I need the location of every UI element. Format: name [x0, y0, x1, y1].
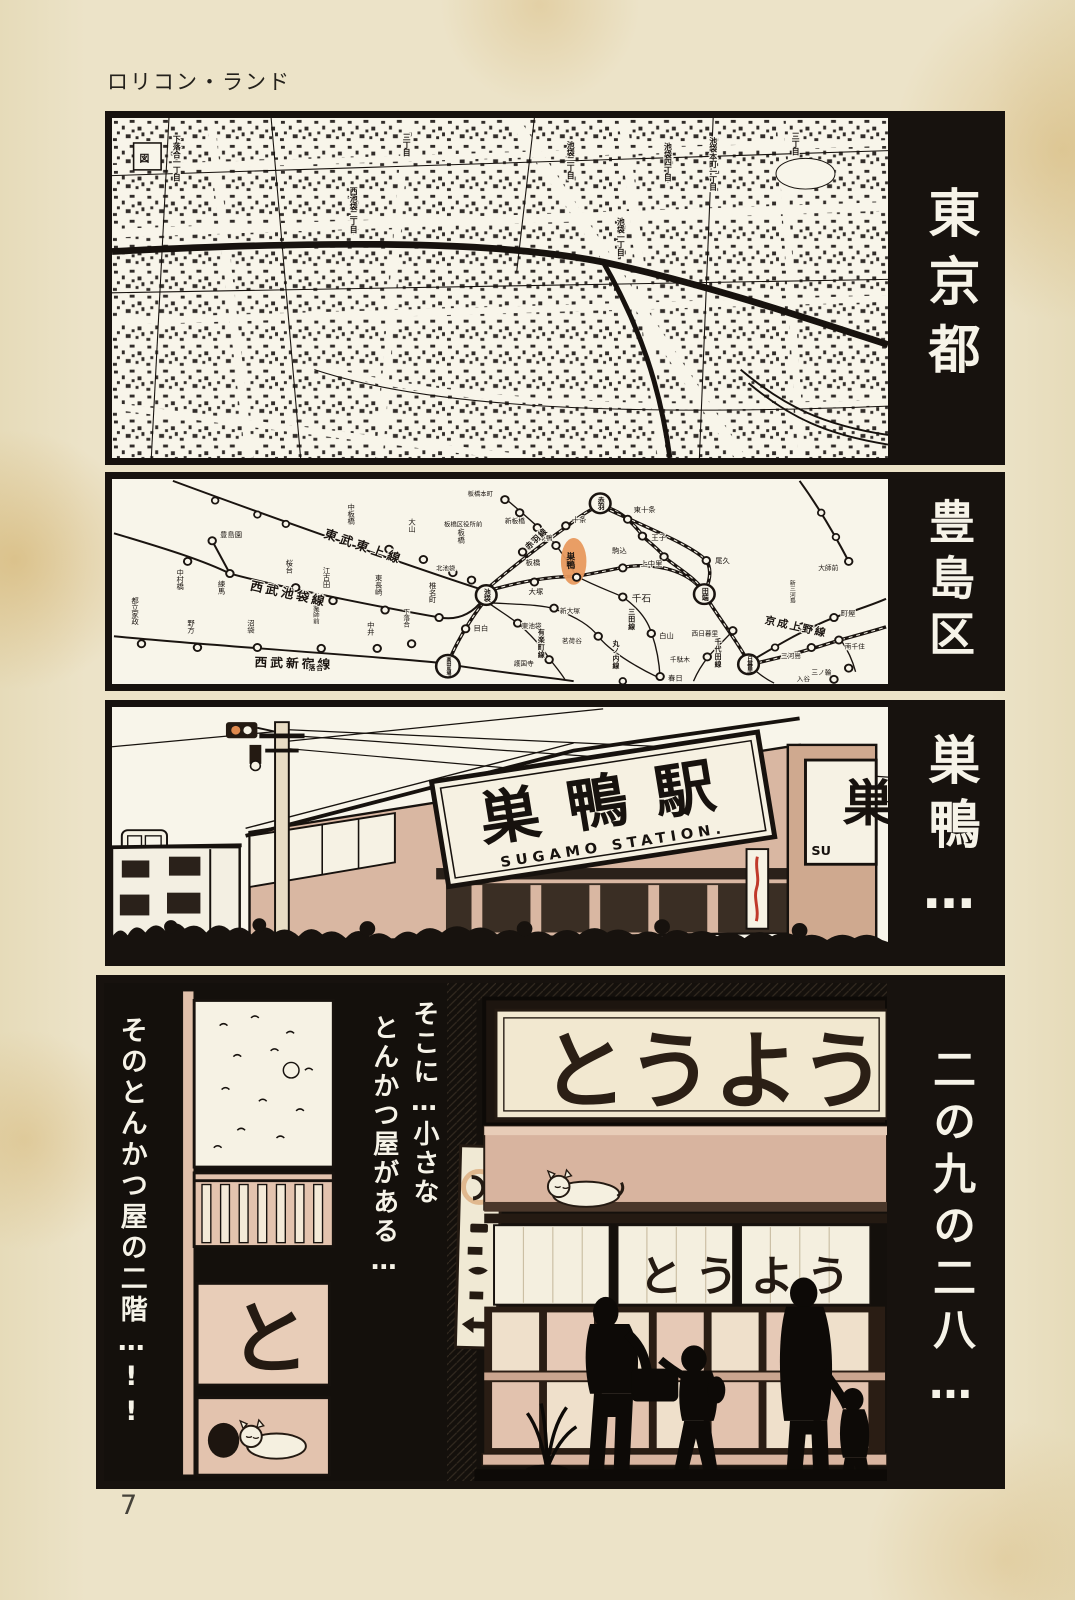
station-label: 沼袋 — [247, 619, 256, 635]
partial-station-sign-sub: SU — [811, 843, 831, 858]
station-label: 三ノ輪 — [811, 668, 832, 677]
station-label: 大師前 — [818, 563, 839, 572]
station-label: 北池袋 — [436, 565, 455, 573]
caption-bar-tokyo: 東京都 — [893, 111, 1005, 465]
station-label: 桜台 — [285, 559, 294, 575]
station-dot — [594, 633, 601, 640]
to-sign-char: と — [229, 1293, 309, 1385]
station-banner — [747, 849, 769, 929]
caption-bar-toshima: 豊島区 — [893, 472, 1005, 691]
district-label: 三丁目 — [791, 132, 800, 156]
to-signboard: と — [197, 1283, 329, 1385]
caption-bar-address: 二の九の二八… — [895, 975, 1005, 1489]
district-label: 下落合一丁目 — [172, 135, 181, 182]
station-label: 板橋 — [526, 558, 541, 567]
page-number: 7 — [120, 1490, 137, 1521]
station-dot — [462, 625, 469, 632]
panel-map-tokyo: 下落合一丁目図三丁目西池袋二丁目池袋二丁目池袋一丁目池袋四丁目池袋本町一丁目三丁… — [105, 111, 895, 465]
station-dot — [830, 676, 837, 683]
station-dot — [212, 497, 219, 503]
station-label: 千石 — [632, 594, 652, 605]
tonkatsu-shop-scene: と — [104, 983, 887, 1481]
caption-there-is-a-shop: そこに…小さな とんかつ屋がある… — [336, 1000, 444, 1340]
station-dot — [501, 496, 508, 503]
station-label: 東長崎 — [375, 574, 384, 596]
district-label: 池袋一丁目 — [616, 217, 625, 258]
major-station-label: 赤羽 — [596, 496, 605, 511]
station-dot — [254, 511, 261, 517]
station-dot — [208, 537, 215, 544]
station-label: 板橋区役所前 — [444, 521, 482, 529]
station-label: 王子 — [651, 533, 666, 542]
station-dot — [194, 644, 201, 651]
station-label: 町屋 — [841, 609, 856, 618]
panel-sugamo-station: 巣 SU 巣鴨駅 SUGAMO STATION. — [105, 700, 895, 966]
wall-edge — [182, 991, 194, 1475]
station-label: 上中里 — [640, 559, 662, 568]
station-dot — [226, 570, 233, 577]
station-dot — [545, 656, 552, 663]
shop-fascia — [484, 1126, 887, 1211]
district-label: 西池袋二丁目 — [349, 187, 358, 234]
station-dot — [835, 636, 842, 643]
station-label: 中村橋 — [176, 568, 185, 591]
rail-lines — [114, 481, 886, 683]
manga-page: ロリコン・ランド — [0, 0, 1075, 1600]
station-label: 護国寺 — [514, 658, 535, 667]
station-label: 中井 — [367, 621, 376, 637]
caption-sugamo: 巣鴨… — [923, 733, 975, 933]
map-park — [776, 158, 835, 189]
station-label: 駒込 — [612, 546, 627, 555]
station-dot — [184, 558, 191, 565]
line-label: 落合 — [308, 663, 324, 672]
district-label: 池袋二丁目 — [566, 140, 575, 181]
district-label: 図 — [140, 153, 150, 165]
station-dot — [619, 593, 626, 600]
station-dot — [639, 533, 646, 540]
station-dot — [704, 653, 711, 660]
station-label: 江古田 — [323, 567, 332, 589]
station-dot — [516, 509, 523, 516]
station-dot — [531, 578, 538, 585]
balcony-railing — [194, 1173, 333, 1247]
station-label: 椎名町 — [429, 581, 438, 603]
caption-col-2: とんかつ屋がある… — [363, 1000, 403, 1340]
line-label: 三田線 — [627, 608, 636, 631]
station-dot — [514, 620, 521, 627]
station-dot — [381, 606, 388, 613]
district-label: 池袋本町一丁目 — [708, 136, 717, 192]
partial-station-sign-char: 巣 — [843, 775, 888, 833]
major-station-label: 池袋 — [482, 587, 492, 602]
caption-toshima: 豊島区 — [926, 498, 972, 666]
station-label: 新板橋 — [505, 516, 526, 525]
shop-sign-text: とうよう — [541, 1023, 886, 1122]
noren-text: とうよう — [639, 1252, 862, 1302]
upper-window — [194, 1000, 333, 1167]
station-label: 入谷 — [797, 674, 811, 683]
line-label: 千代田線 — [713, 637, 723, 668]
station-label: 都立家政 — [131, 597, 140, 626]
station-dot — [845, 665, 852, 672]
station-dot — [562, 522, 569, 529]
shadow-blob — [208, 1423, 239, 1458]
station-dot — [818, 510, 825, 516]
station-dot — [830, 614, 837, 621]
station-dot — [619, 678, 626, 684]
cat-panel — [197, 1398, 329, 1476]
caption-bar-sugamo: 巣鴨… — [893, 700, 1005, 966]
station-label: 白山 — [659, 631, 674, 640]
station-dot — [435, 614, 442, 621]
line-label: 東武東上線 — [322, 526, 406, 567]
traffic-light-icon — [226, 722, 275, 770]
station-dot — [550, 605, 557, 612]
station-dot — [729, 627, 736, 634]
station-dot — [845, 558, 852, 565]
station-label: 東十条 — [634, 505, 656, 514]
station-label: 巣鴨 — [565, 551, 577, 570]
station-dot — [552, 542, 559, 549]
page-title: ロリコン・ランド — [107, 66, 291, 96]
station-dot — [656, 673, 663, 680]
district-label: 池袋四丁目 — [663, 142, 672, 183]
station-label: 大塚 — [528, 587, 543, 596]
station-dot — [519, 548, 526, 555]
station-dot — [317, 645, 324, 652]
station-label: 三河島 — [781, 651, 802, 660]
station-dot — [138, 640, 145, 647]
station-label: 大山 — [408, 518, 417, 534]
sugamo-station-scene: 巣 SU 巣鴨駅 SUGAMO STATION. — [112, 707, 888, 959]
station-label: 新三河島 — [788, 579, 795, 604]
caption-tonkatsu-second-floor: そのとんかつ屋の二階…!! — [114, 1016, 148, 1476]
station-dot — [624, 516, 631, 523]
station-label: 下落合 — [402, 608, 410, 629]
line-label: 西武池袋線 — [249, 578, 329, 609]
shop-sign: とうよう — [484, 999, 887, 1125]
station-dot — [468, 577, 475, 584]
station-label: 豊島園 — [220, 530, 242, 539]
caption-tokyo: 東京都 — [923, 186, 975, 390]
station-label: 茗荷谷 — [562, 636, 583, 645]
station-dot — [772, 644, 779, 650]
station-dot — [373, 645, 380, 652]
station-label: 十条 — [572, 515, 587, 524]
station-dot — [573, 574, 580, 581]
tokyo-street-map: 下落合一丁目図三丁目西池袋二丁目池袋二丁目池袋一丁目池袋四丁目池袋本町一丁目三丁… — [112, 118, 888, 458]
station-dot — [420, 556, 427, 563]
station-label: 春日 — [668, 673, 683, 682]
station-label: 南千住 — [845, 642, 866, 651]
major-station-label: 田端 — [700, 587, 709, 601]
station-dot — [283, 521, 290, 527]
panel-tonkatsu-shop: と — [96, 975, 895, 1489]
rail-network-map: 豊島園中村橋練馬桜台江古田東長崎椎名町都立家政野方沼袋新井薬師前中井下落合目白中… — [112, 479, 888, 684]
station-dot — [703, 557, 710, 564]
station-dot — [254, 644, 261, 651]
station-label: 板橋本町 — [468, 490, 493, 498]
station-label: 中板橋 — [347, 503, 356, 526]
station-dot — [619, 564, 626, 571]
station-label: 目白 — [473, 624, 488, 633]
station-dot — [833, 534, 840, 540]
panel-rail-map: 豊島園中村橋練馬桜台江古田東長崎椎名町都立家政野方沼袋新井薬師前中井下落合目白中… — [105, 472, 895, 691]
station-dot — [408, 640, 415, 647]
caption-col-1: そこに…小さな — [404, 1000, 444, 1340]
district-label: 三丁目 — [402, 133, 411, 157]
station-label: 尾久 — [715, 556, 730, 565]
station-dot — [648, 630, 655, 637]
line-label: 丸ノ内線 — [611, 639, 621, 670]
station-label: 野方 — [187, 619, 196, 634]
station-dot — [329, 597, 336, 604]
caption-address: 二の九の二八… — [929, 1047, 972, 1418]
station-label: 練馬 — [217, 579, 226, 595]
line-label: 有楽町線 — [536, 628, 546, 659]
station-label: 西日暮里 — [692, 628, 719, 637]
noren-curtain: とうよう — [484, 1214, 887, 1305]
station-label: 新大塚 — [560, 606, 581, 615]
station-label: 千駄木 — [670, 655, 691, 664]
station-dot — [808, 644, 815, 651]
